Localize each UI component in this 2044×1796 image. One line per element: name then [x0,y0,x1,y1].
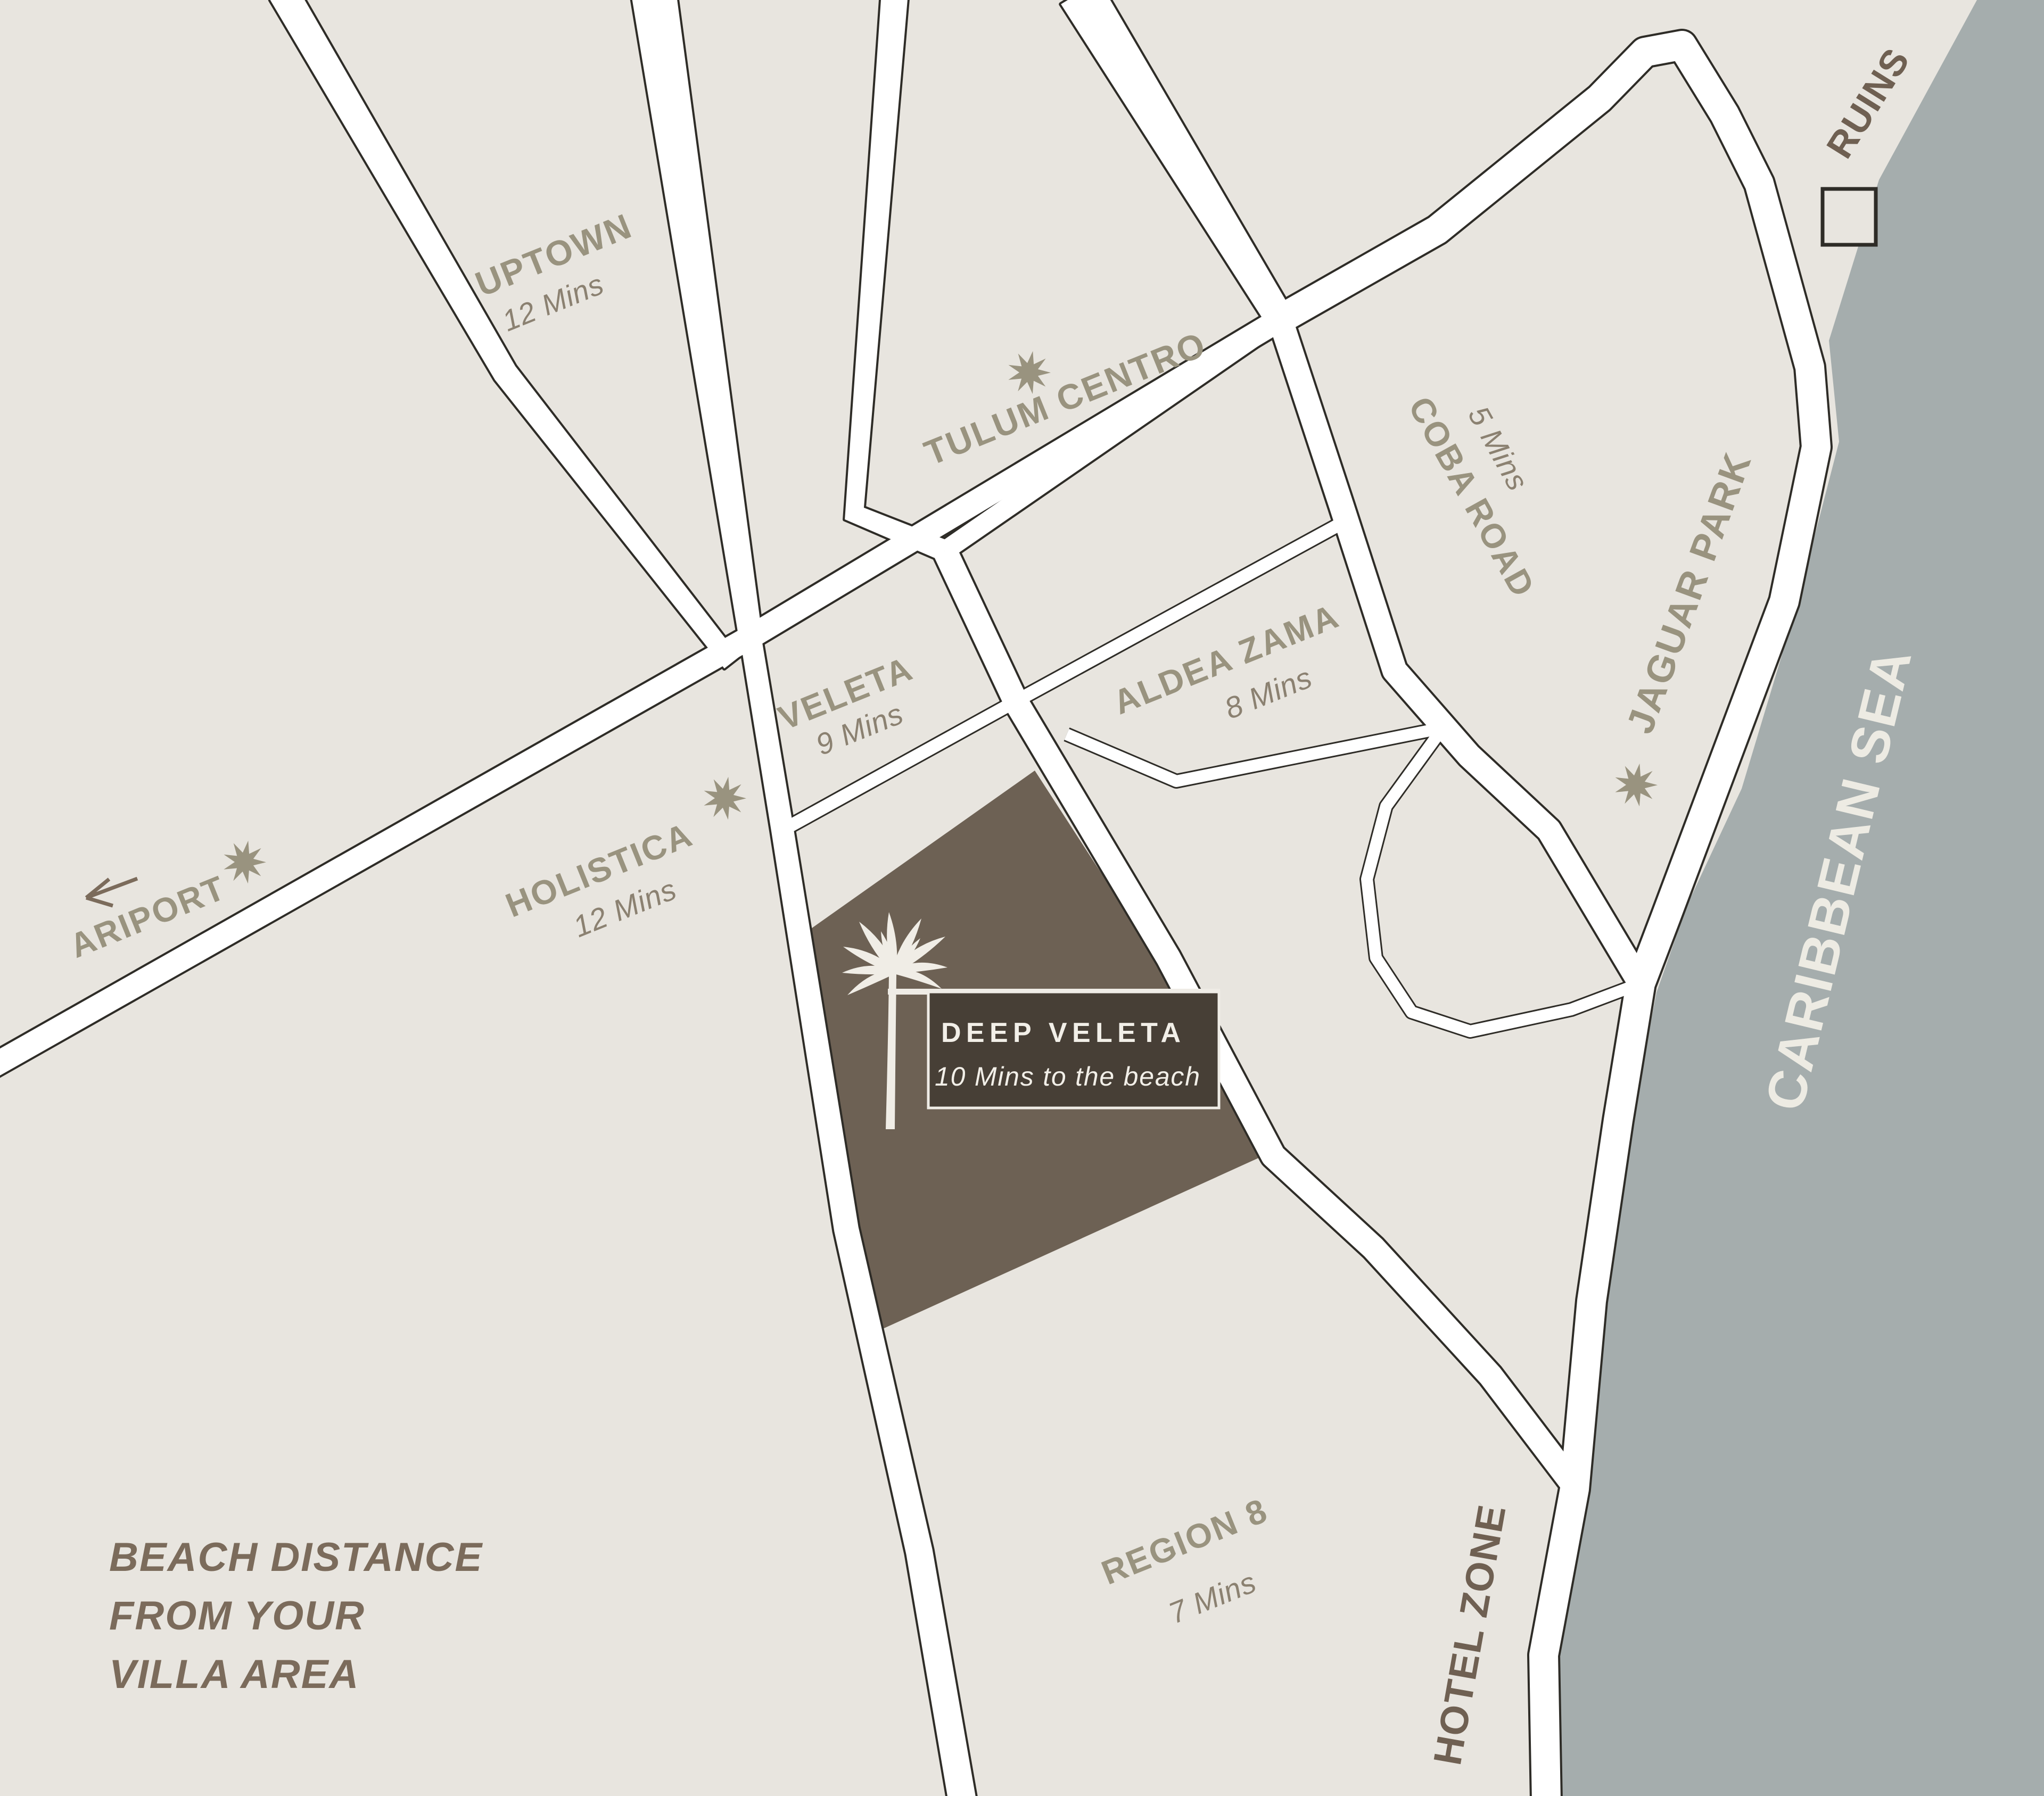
svg-text:10 Mins to the beach: 10 Mins to the beach [935,1062,1200,1091]
svg-text:VILLA AREA: VILLA AREA [109,1652,359,1697]
svg-text:BEACH DISTANCE: BEACH DISTANCE [109,1535,483,1580]
svg-text:FROM YOUR: FROM YOUR [109,1593,365,1638]
svg-text:DEEP VELETA: DEEP VELETA [941,1017,1181,1048]
